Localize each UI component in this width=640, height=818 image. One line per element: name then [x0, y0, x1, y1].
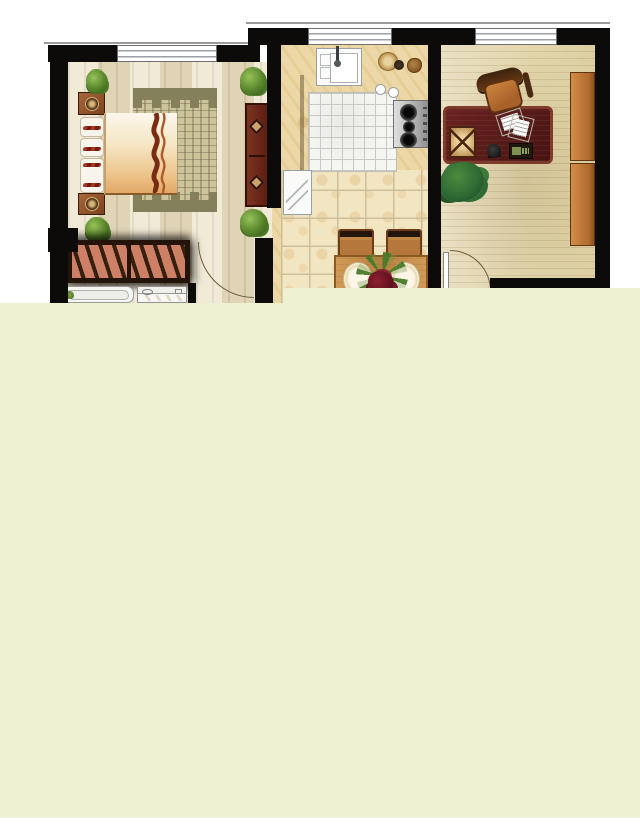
bathtub-basin — [67, 290, 129, 300]
window-kitchen — [308, 28, 392, 45]
exterior-outline-upper — [246, 22, 610, 24]
window-bedroom — [117, 45, 217, 62]
bedroom-side-dresser — [245, 103, 269, 207]
kitchen-ring-plate — [388, 87, 399, 98]
kitchen-ring-plate — [375, 84, 386, 95]
refrigerator — [283, 170, 312, 215]
desk-keypad-device — [509, 143, 533, 159]
wall-left — [50, 45, 68, 303]
pale-overlay-right — [283, 288, 640, 303]
wall-bedroom-top-right — [217, 45, 260, 62]
faucet-base — [334, 60, 341, 67]
wall-bath-divider — [188, 283, 196, 303]
blanket-stripe — [82, 163, 101, 167]
dresser-divider — [249, 155, 265, 157]
window-study — [475, 28, 557, 45]
keypad-screen — [512, 147, 521, 155]
dining-chair-left — [338, 229, 374, 257]
kitchen-floor-mat — [308, 92, 397, 172]
potted-plant-bedroom-bl — [85, 218, 110, 242]
wall-kitchen-study — [428, 28, 441, 290]
bed-folded-blanket — [80, 158, 104, 193]
quilt-wavy-stripe — [106, 113, 177, 193]
bed-pillow-1 — [80, 117, 104, 137]
wall-right — [595, 28, 610, 290]
potted-plant-bedroom-tl — [86, 70, 108, 94]
sink-bowl — [330, 53, 358, 83]
keypad-keys — [522, 148, 529, 154]
fridge-door — [286, 174, 308, 210]
nightstand-ornament — [85, 197, 99, 211]
wall-bedroom-kitchen — [267, 28, 281, 208]
nightstand-top — [78, 92, 105, 115]
sink-faucet — [336, 46, 339, 61]
wall-bedroom-door-stub — [255, 238, 273, 303]
wall-left-pier — [48, 228, 78, 252]
bathtub — [62, 286, 134, 303]
nightstand-ornament — [85, 97, 99, 111]
nightstand-bottom — [78, 193, 105, 215]
kitchen-sink — [316, 48, 362, 86]
dresser-ornament — [249, 175, 265, 191]
exterior-outline-bedroom — [44, 42, 260, 44]
bed-pillow-2 — [80, 138, 104, 157]
blanket-stripe — [82, 183, 101, 187]
bed-quilt — [104, 113, 177, 195]
floor-plan-canvas — [0, 0, 640, 818]
washing-machine — [137, 286, 187, 303]
stove-burner — [400, 104, 417, 121]
pillow-pattern — [82, 147, 101, 151]
washer-button — [175, 289, 182, 294]
kitchen-small-bowl — [394, 60, 404, 70]
potted-plant-bedroom-br — [240, 210, 268, 237]
pillow-pattern — [82, 126, 101, 130]
counter-edge-seam — [300, 75, 304, 170]
dresser-ornament — [249, 119, 265, 135]
bookshelf-panel-top — [570, 72, 595, 161]
potted-plant-bedroom-tr — [240, 68, 267, 96]
desk-telephone — [487, 144, 501, 158]
study-door-leaf — [443, 252, 449, 290]
gas-stove — [393, 100, 429, 148]
stove-burner — [400, 132, 417, 148]
washer-body — [141, 295, 183, 301]
pale-overlay-bottom — [0, 303, 640, 818]
stove-knobs — [423, 107, 427, 141]
desk-lamp — [449, 126, 476, 158]
wardrobe-divider — [127, 245, 131, 278]
rug-bottom-band — [133, 200, 217, 212]
washer-knob — [142, 289, 153, 295]
wardrobe — [67, 240, 190, 283]
rug-top-teeth — [133, 100, 217, 108]
rug-top-band — [133, 88, 217, 100]
bookshelf-panel-bottom — [570, 163, 595, 246]
